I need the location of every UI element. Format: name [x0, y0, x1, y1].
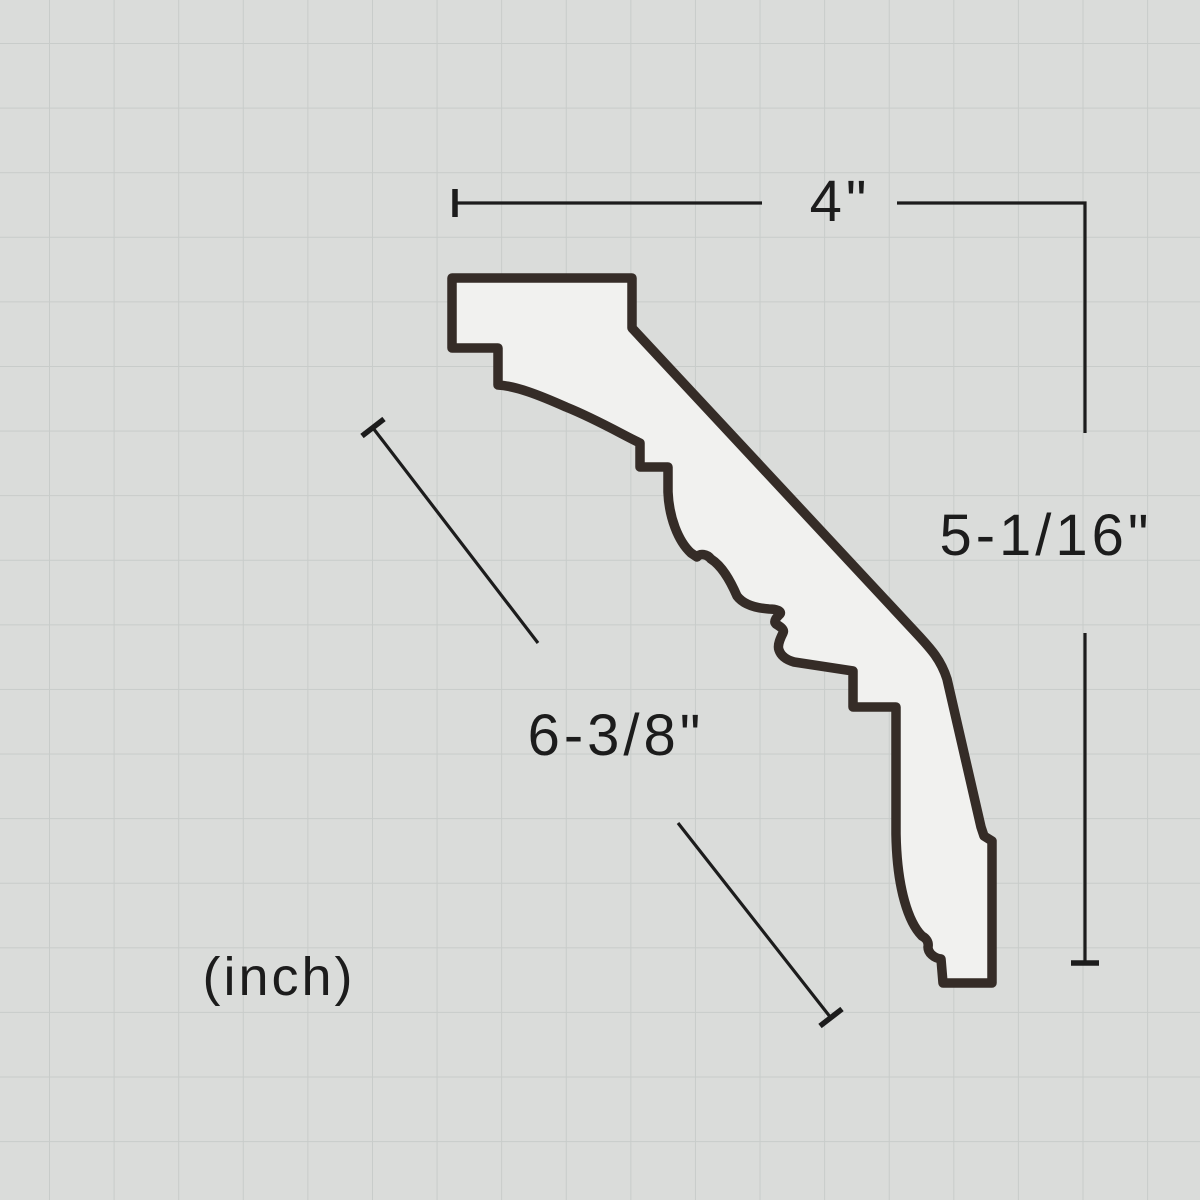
dim-width-label: 4" — [810, 173, 871, 231]
drawing-canvas: 4" 5-1/16" 6-3/8" (inch) — [0, 0, 1200, 1200]
dim-diagonal-label: 6-3/8" — [528, 707, 705, 765]
units-label: (inch) — [202, 950, 355, 1004]
molding-profile-svg — [0, 0, 1200, 1200]
dim-height-label: 5-1/16" — [939, 507, 1152, 565]
